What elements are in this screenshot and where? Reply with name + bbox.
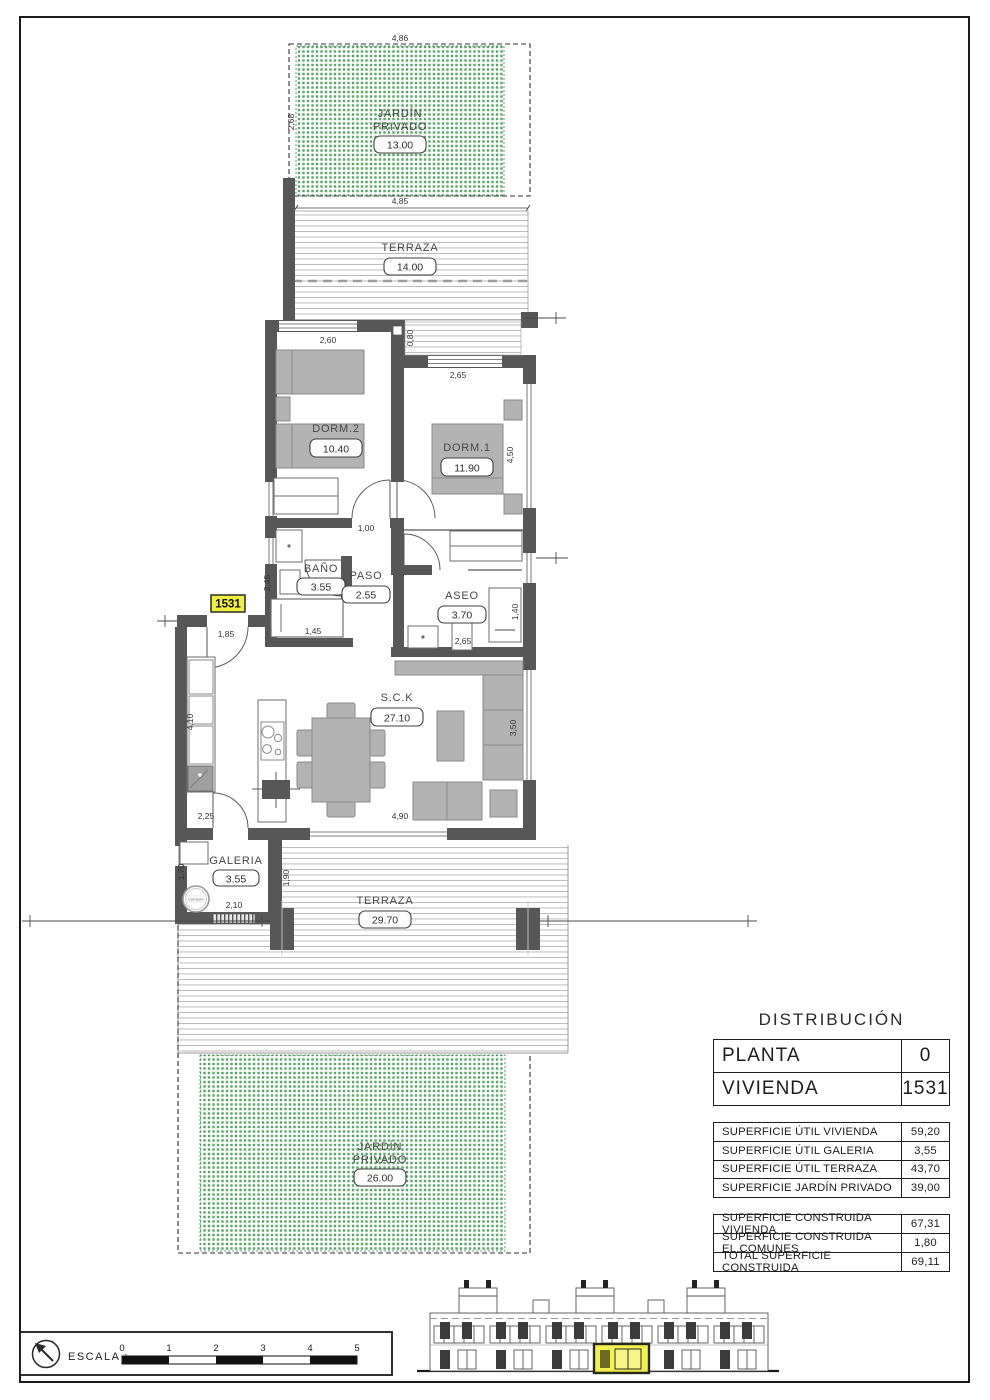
chair <box>369 730 385 756</box>
table-row: SUPERFICIE ÚTIL VIVIENDA 59,20 <box>714 1123 949 1141</box>
scale-tick-1: 1 <box>166 1343 171 1354</box>
terraza-bottom-area: 29.70 <box>372 915 398 927</box>
surface-value: 39,00 <box>902 1179 949 1197</box>
galeria-label: GALERIA <box>209 855 262 867</box>
dim-aseo-width: 2,65 <box>455 636 472 646</box>
vivienda-row: VIVIENDA 1531 <box>714 1072 949 1105</box>
cabinet <box>189 726 213 764</box>
sck-area: 27.10 <box>384 713 410 725</box>
garden-bottom-area-value: 26.00 <box>367 1173 393 1185</box>
stair-tower <box>687 1288 725 1313</box>
dim-entry-width: 1,85 <box>218 629 235 639</box>
water-heater-label: Calentador <box>188 898 205 902</box>
floorplan-sheet: { "plan": { "unit_badge": "1531", "rooms… <box>0 0 990 1400</box>
surface-label: SUPERFICIE ÚTIL VIVIENDA <box>714 1123 902 1141</box>
chair <box>327 801 355 817</box>
table-row: SUPERFICIE JARDÍN PRIVADO 39,00 <box>714 1178 949 1197</box>
planta-row: PLANTA 0 <box>714 1040 949 1072</box>
dorm1-label: DORM.1 <box>443 442 491 454</box>
dim-kitchen-width: 2,25 <box>198 811 215 821</box>
dining-table <box>312 718 370 802</box>
garden-bottom-area <box>200 1055 505 1251</box>
dim-dorm1-height: 4,50 <box>505 446 515 463</box>
scale-tick-4: 4 <box>307 1343 312 1354</box>
garden-bottom-label-1: JARDÍN <box>358 1140 403 1153</box>
util-surface-table: SUPERFICIE ÚTIL VIVIENDA 59,20 SUPERFICI… <box>713 1122 950 1198</box>
surface-label: SUPERFICIE ÚTIL TERRAZA <box>714 1161 902 1179</box>
stair-tower <box>576 1288 614 1313</box>
surface-label: TOTAL SUPERFICIE CONSTRUIDA <box>714 1253 902 1271</box>
dim-garden-top-width: 4,86 <box>392 33 409 43</box>
terrace-sliding-door <box>310 829 447 839</box>
surface-value: 59,20 <box>902 1123 949 1141</box>
unit-badge-number: 1531 <box>215 599 241 611</box>
dim-bano-height: 2,45 <box>262 574 272 591</box>
nightstand <box>504 400 522 420</box>
chair <box>369 762 385 788</box>
panel-title: DISTRIBUCIÓN <box>713 1010 950 1030</box>
dorm1-area: 11.90 <box>454 463 480 475</box>
surface-value: 43,70 <box>902 1161 949 1179</box>
coffee-table <box>437 711 464 761</box>
chair <box>297 762 313 788</box>
dorm2-label: DORM.2 <box>312 423 360 435</box>
paso-label: PASO <box>350 570 383 582</box>
scale-box: ESCALA : 0 1 2 3 4 5 <box>20 1332 392 1375</box>
built-surface-table: SUPERFICIE CONSTRUIDA VIVIENDA 67,31 SUP… <box>713 1214 950 1271</box>
surface-value: 3,55 <box>902 1142 949 1160</box>
fridge <box>189 660 213 694</box>
unit-id-table: PLANTA 0 VIVIENDA 1531 <box>713 1039 950 1106</box>
kitchen-island <box>258 700 286 822</box>
terraza-top: 4,85 TERRAZA 14.00 <box>293 196 530 320</box>
chair <box>327 703 355 719</box>
distribucion-panel: DISTRIBUCIÓN PLANTA 0 VIVIENDA 1531 SUPE… <box>713 1010 950 1272</box>
aseo-area: 3.70 <box>452 610 473 622</box>
galeria-area: 3.55 <box>226 874 247 886</box>
scale-tick-3: 3 <box>260 1343 265 1354</box>
vivienda-value: 1531 <box>902 1073 949 1105</box>
dim-kitchen-height: 4,10 <box>185 713 195 730</box>
dorm2-area: 10.40 <box>323 444 349 456</box>
bano-area: 3.55 <box>311 582 332 594</box>
terraza-bottom-label: TERRAZA <box>357 895 414 907</box>
dim-terraza-top-width: 4,85 <box>392 196 409 206</box>
nightstand <box>504 494 522 514</box>
dim-bath-length: 1,45 <box>305 626 322 636</box>
surface-value: 69,11 <box>902 1253 949 1271</box>
table-row: TOTAL SUPERFICIE CONSTRUIDA 69,11 <box>714 1252 949 1271</box>
chair <box>297 730 313 756</box>
dim-garden-top-height: 2,68 <box>286 113 296 130</box>
scale-tick-0: 0 <box>119 1343 124 1354</box>
stair-tower <box>459 1288 497 1313</box>
garden-bottom-label-2: PRIVADO <box>353 1154 407 1166</box>
dim-dorm2-width: 2,60 <box>320 335 337 345</box>
surface-value: 67,31 <box>902 1215 949 1233</box>
planta-label: PLANTA <box>714 1040 902 1072</box>
building-elevation <box>417 1280 779 1373</box>
aseo-label: ASEO <box>445 590 479 602</box>
garden-top-label-2: PRIVADO <box>373 121 427 133</box>
dim-galeria-width: 2,10 <box>226 900 243 910</box>
dorm2-window <box>279 321 357 331</box>
scale-tick-5: 5 <box>354 1343 359 1354</box>
right-wall-windows <box>522 384 537 780</box>
dorm1-terrace-strip <box>405 322 521 355</box>
dim-dorm1-width: 2,65 <box>450 370 467 380</box>
north-arrow-icon <box>33 1341 60 1368</box>
dim-living-height: 3,50 <box>508 719 518 736</box>
laundry-unit <box>180 842 208 864</box>
nightstand <box>276 397 290 421</box>
sck-label: S.C.K <box>381 692 414 704</box>
surface-label: SUPERFICIE ÚTIL GALERIA <box>714 1142 902 1160</box>
table-row: SUPERFICIE ÚTIL GALERIA 3,55 <box>714 1141 949 1160</box>
unit-badge: 1531 <box>211 595 245 612</box>
side-table <box>490 790 517 817</box>
dorm1-window <box>428 356 502 367</box>
terraza-top-area-value: 14.00 <box>397 262 423 274</box>
dim-aseo-height: 1,40 <box>510 603 520 620</box>
surface-label: SUPERFICIE JARDÍN PRIVADO <box>714 1179 902 1197</box>
vivienda-label: VIVIENDA <box>714 1073 902 1105</box>
paso-area: 2.55 <box>356 590 377 602</box>
table-row: SUPERFICIE ÚTIL TERRAZA 43,70 <box>714 1160 949 1179</box>
planta-value: 0 <box>902 1040 949 1072</box>
garden-top: 4,86 2,68 JARDÍN PRIVADO 13.00 <box>286 33 530 196</box>
bed-single-1 <box>276 350 364 394</box>
dim-strip-depth: 0,80 <box>405 329 415 346</box>
kitchen-sink <box>188 766 213 791</box>
terraza-top-label: TERRAZA <box>382 242 439 254</box>
sideboard <box>395 661 523 675</box>
garden-top-area-value: 13.00 <box>387 140 413 152</box>
galeria-vent <box>213 914 255 923</box>
bano-label: BAÑO <box>304 562 338 575</box>
dim-paso-width: 1,00 <box>358 523 375 533</box>
highlighted-unit <box>594 1344 649 1373</box>
dim-galeria-height: 1,70 <box>176 863 186 880</box>
surface-value: 1,80 <box>902 1234 949 1252</box>
dim-living-width: 4,90 <box>392 811 409 821</box>
scale-tick-2: 2 <box>213 1343 218 1354</box>
dim-galeria-right: 1,90 <box>281 869 291 886</box>
garden-top-label-1: JARDÍN <box>378 107 423 120</box>
